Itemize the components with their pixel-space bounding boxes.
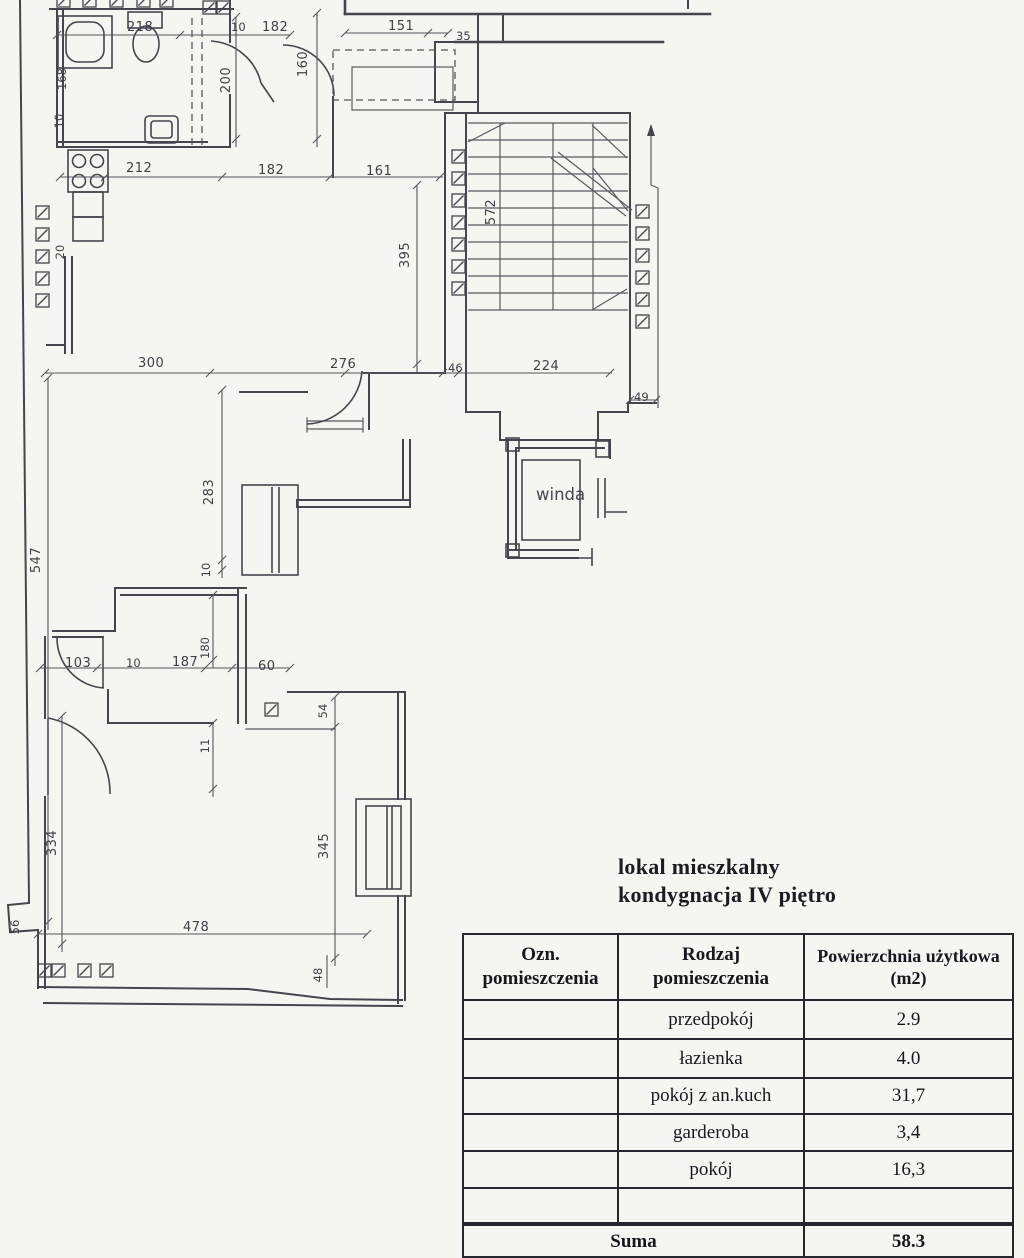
dim-label: 48 xyxy=(311,968,325,983)
dim-label: 395 xyxy=(398,242,413,268)
dim-label: 168 xyxy=(55,68,69,90)
table-header-row: Ozn. pomieszczenia Rodzaj pomieszczenia … xyxy=(464,935,1012,999)
room-name: garderoba xyxy=(617,1115,803,1150)
dim-label: 160 xyxy=(296,51,311,77)
table-row-empty xyxy=(464,1187,1012,1222)
dim-label: 345 xyxy=(317,833,332,859)
small-basin xyxy=(145,116,178,143)
dim-label: 10 xyxy=(231,20,246,34)
table-row: garderoba 3,4 xyxy=(464,1113,1012,1150)
room-area: 3,4 xyxy=(803,1115,1012,1150)
room-area: 31,7 xyxy=(803,1079,1012,1113)
dim-label: 11 xyxy=(198,739,212,754)
drawing-title: lokal mieszkalny kondygnacja IV piętro xyxy=(618,853,836,909)
dim-label: 218 xyxy=(127,20,153,35)
dim-label: 200 xyxy=(219,67,234,93)
kitchen-cabinet xyxy=(73,192,103,217)
elevator-door xyxy=(598,478,627,518)
dim-label: 224 xyxy=(533,359,559,374)
dim-label: 182 xyxy=(258,163,284,178)
room-area: 4.0 xyxy=(803,1040,1012,1077)
room-name: pokój xyxy=(617,1152,803,1187)
room-name: przedpokój xyxy=(617,1001,803,1038)
dim-label: 212 xyxy=(126,161,152,176)
dim-label: 20 xyxy=(53,245,67,260)
room-name: pokój z an.kuch xyxy=(617,1079,803,1113)
dim-label: 182 xyxy=(262,20,288,35)
table-suma-row: Suma 58.3 xyxy=(464,1222,1012,1258)
table-row: pokój z an.kuch 31,7 xyxy=(464,1077,1012,1113)
header-ozn: Ozn. pomieszczenia xyxy=(464,935,617,999)
dim-label: 334 xyxy=(45,830,60,856)
window xyxy=(356,799,411,896)
dim-label: 187 xyxy=(172,655,198,670)
table-row: pokój 16,3 xyxy=(464,1150,1012,1187)
dim-label: 180 xyxy=(198,637,212,659)
room-name: łazienka xyxy=(617,1040,803,1077)
dim-label: 276 xyxy=(330,357,356,372)
wardrobe xyxy=(242,485,298,575)
bathroom-kitchen-fixtures xyxy=(58,12,411,896)
header-powierzchnia: Powierzchnia użytkowa (m2) xyxy=(803,935,1012,999)
scanned-floor-plan-page: 218 10 182 151 35 168 10 200 160 212 182… xyxy=(0,0,1024,1258)
dim-label: 49 xyxy=(634,390,649,404)
dim-label: 151 xyxy=(388,19,414,34)
dim-label: 56 xyxy=(8,920,22,935)
table-row: przedpokój 2.9 xyxy=(464,999,1012,1038)
room-name xyxy=(617,1189,803,1222)
room-area-table: Ozn. pomieszczenia Rodzaj pomieszczenia … xyxy=(462,933,1014,1258)
dim-label: 54 xyxy=(316,704,330,719)
dim-label: 478 xyxy=(183,920,209,935)
room-area: 2.9 xyxy=(803,1001,1012,1038)
room-area: 16,3 xyxy=(803,1152,1012,1187)
dim-label: 300 xyxy=(138,356,164,371)
dim-label: 10 xyxy=(199,563,213,578)
dim-label: 46 xyxy=(448,361,463,375)
dim-label: 35 xyxy=(456,29,471,43)
suma-value: 58.3 xyxy=(803,1226,1012,1258)
suma-label: Suma xyxy=(464,1226,803,1258)
title-line-1: lokal mieszkalny xyxy=(618,853,836,881)
dim-label: 283 xyxy=(202,479,217,505)
winda-label: winda xyxy=(536,485,585,504)
dim-label: 547 xyxy=(29,547,44,573)
dim-label: 103 xyxy=(65,656,91,671)
dim-label: 10 xyxy=(126,656,141,670)
table-row: łazienka 4.0 xyxy=(464,1038,1012,1077)
room-labels: winda xyxy=(536,485,585,504)
dim-label: 60 xyxy=(258,659,276,674)
title-line-2: kondygnacja IV piętro xyxy=(618,881,836,909)
header-rodzaj: Rodzaj pomieszczenia xyxy=(617,935,803,999)
dim-label: 572 xyxy=(484,199,499,225)
room-area xyxy=(803,1189,1012,1222)
dim-label: 161 xyxy=(366,164,392,179)
dim-label: 10 xyxy=(52,114,66,129)
